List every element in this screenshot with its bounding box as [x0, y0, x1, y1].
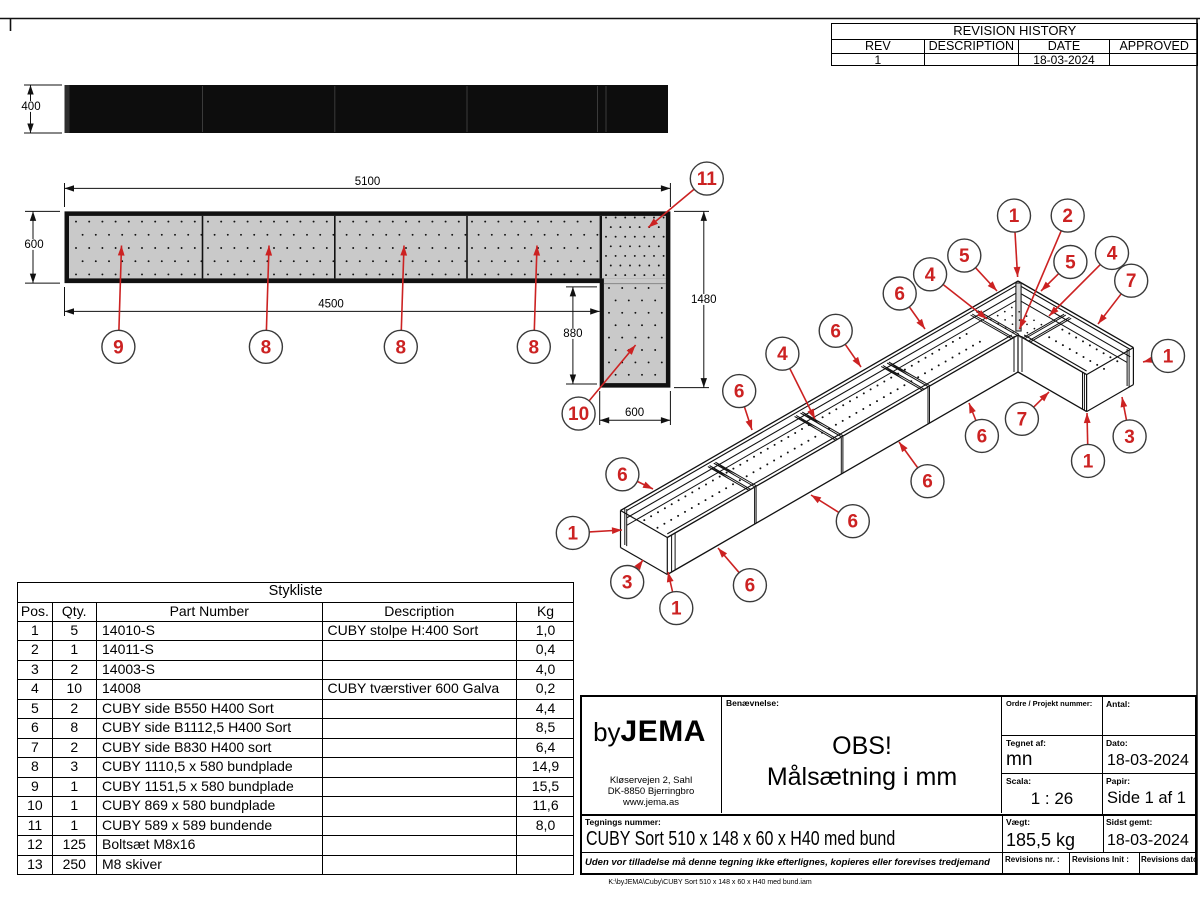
svg-text:8: 8 [261, 337, 272, 358]
svg-text:6: 6 [734, 382, 745, 403]
svg-text:880: 880 [563, 328, 582, 340]
svg-text:1: 1 [671, 599, 682, 620]
svg-text:2: 2 [1062, 206, 1073, 227]
svg-text:6: 6 [848, 512, 859, 533]
svg-text:1: 1 [568, 523, 579, 544]
svg-text:5: 5 [1065, 253, 1076, 274]
svg-text:600: 600 [24, 239, 43, 251]
svg-text:10: 10 [568, 404, 589, 425]
svg-text:3: 3 [1124, 427, 1135, 448]
svg-text:8: 8 [529, 337, 540, 358]
svg-text:7: 7 [1017, 409, 1028, 430]
svg-text:4500: 4500 [318, 299, 344, 311]
svg-text:7: 7 [1126, 271, 1137, 292]
svg-text:4: 4 [925, 265, 936, 286]
svg-text:6: 6 [617, 465, 628, 486]
svg-text:1: 1 [1009, 206, 1020, 227]
svg-text:9: 9 [113, 337, 124, 358]
svg-text:4: 4 [777, 344, 788, 365]
svg-text:6: 6 [894, 284, 905, 305]
svg-text:6: 6 [745, 576, 756, 597]
svg-text:400: 400 [21, 101, 40, 113]
svg-text:3: 3 [622, 573, 633, 594]
svg-text:11: 11 [697, 169, 718, 190]
svg-text:8: 8 [396, 337, 407, 358]
svg-text:6: 6 [830, 321, 841, 342]
svg-text:1480: 1480 [691, 294, 717, 306]
svg-text:600: 600 [625, 407, 644, 419]
svg-text:6: 6 [977, 426, 988, 447]
svg-text:1: 1 [1083, 451, 1094, 472]
svg-text:6: 6 [922, 472, 933, 493]
svg-text:4: 4 [1107, 243, 1118, 264]
svg-text:5: 5 [959, 246, 970, 267]
svg-text:5100: 5100 [355, 176, 381, 188]
svg-text:1: 1 [1163, 346, 1174, 367]
